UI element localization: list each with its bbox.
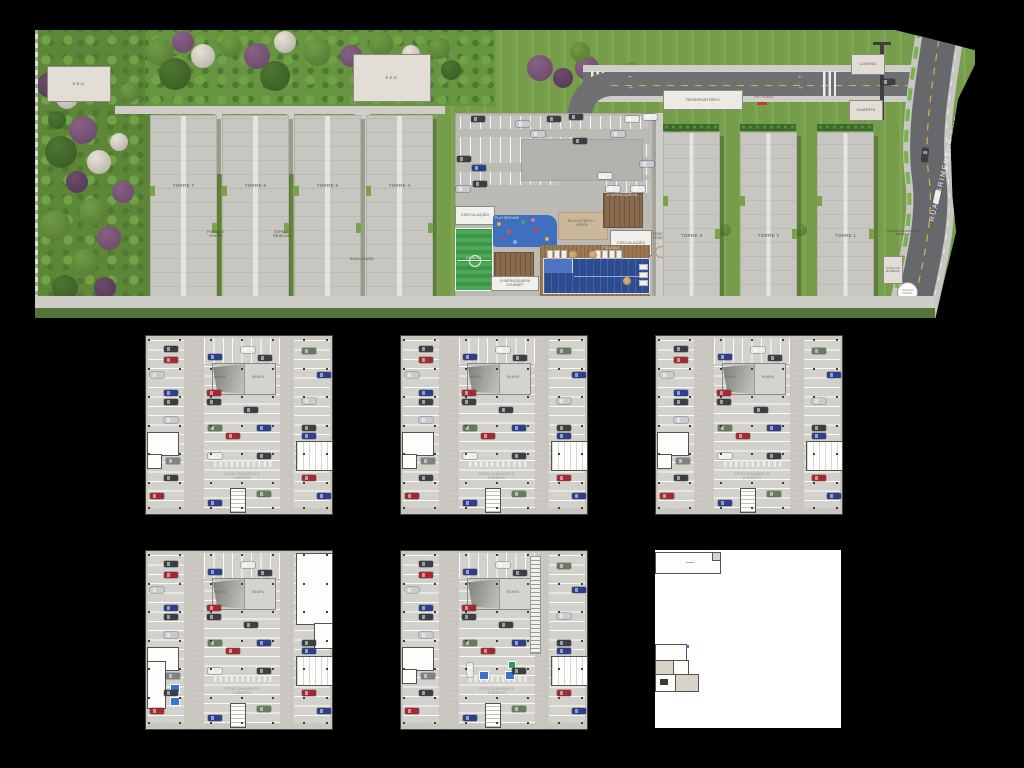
column-dot — [210, 697, 212, 699]
car — [405, 587, 419, 593]
column-dot — [326, 583, 328, 585]
ramp-label-1: RAMPA — [716, 375, 744, 379]
guarita-box: GUARITA — [849, 100, 883, 121]
column-dot — [813, 368, 815, 370]
car — [244, 622, 258, 628]
column-dot — [558, 482, 560, 484]
car — [457, 156, 471, 162]
car — [302, 348, 316, 354]
car — [462, 614, 476, 620]
umbrella — [623, 277, 631, 285]
car — [257, 706, 271, 712]
pool-lounger — [554, 250, 560, 259]
car — [164, 614, 178, 620]
column-dot — [581, 425, 583, 427]
hedge-1 — [663, 124, 719, 131]
blue-fixture — [686, 645, 689, 648]
column-dot — [527, 583, 529, 585]
boulevard-label: BOULEVARD — [345, 257, 379, 261]
column-dot — [210, 611, 212, 613]
car — [164, 561, 178, 567]
playground-toy — [501, 236, 505, 240]
tower-notch — [817, 196, 822, 206]
car — [419, 632, 433, 638]
room-left — [147, 432, 179, 456]
column-dot — [148, 396, 150, 398]
column-dot — [581, 668, 583, 670]
ramp-flat — [244, 364, 275, 394]
room-right — [296, 441, 333, 471]
column-dot — [403, 640, 405, 642]
car — [164, 572, 178, 578]
car — [258, 355, 272, 361]
tower-label: TORRE 5 — [295, 183, 360, 188]
column-dot — [303, 611, 305, 613]
column-dot — [527, 640, 529, 642]
column-dot — [241, 697, 243, 699]
column-dot — [403, 339, 405, 341]
tower-2: TORRE 2 — [740, 132, 797, 300]
car — [767, 491, 781, 497]
column-dot — [210, 583, 212, 585]
car — [572, 493, 586, 499]
estacionamento-label: ESTACIONAMENTO COBERTO — [726, 472, 778, 480]
column-dot — [403, 611, 405, 613]
playground-toy — [507, 230, 511, 234]
column-dot — [241, 554, 243, 556]
column-dot — [241, 425, 243, 427]
column-dot — [148, 507, 150, 509]
column-dot — [272, 368, 274, 370]
car — [463, 569, 477, 575]
tower-label: TORRE 2 — [741, 233, 796, 238]
gate-beam — [873, 42, 891, 45]
column-dot — [689, 368, 691, 370]
car — [754, 407, 768, 413]
parking-ramp — [212, 363, 276, 395]
column-dot — [434, 697, 436, 699]
column-dot — [751, 396, 753, 398]
column-dot — [272, 697, 274, 699]
column-dot — [720, 453, 722, 455]
column-dot — [581, 583, 583, 585]
estacionamento-label: ESTACIONAMENTO COBERTO — [216, 687, 268, 695]
car — [150, 493, 164, 499]
column-dot — [148, 583, 150, 585]
car — [512, 491, 526, 497]
column-dot — [751, 425, 753, 427]
column-dot — [241, 640, 243, 642]
parking-ramp — [722, 363, 786, 395]
column-dot — [403, 507, 405, 509]
column-dot — [179, 722, 181, 724]
column-dot — [689, 453, 691, 455]
car — [473, 181, 487, 187]
stair-core — [485, 488, 501, 513]
room-right — [806, 441, 843, 471]
pool-lounger — [561, 250, 567, 259]
column-dot — [689, 482, 691, 484]
eed-box: E.E.D. — [47, 66, 111, 102]
sidewalk-bottom — [35, 296, 935, 308]
column-dot — [148, 482, 150, 484]
car — [569, 114, 583, 120]
estacionamento-label: ESTACIONAMENTO COBERTO — [471, 472, 523, 480]
car — [419, 346, 433, 352]
column-dot — [465, 339, 467, 341]
column-dot — [403, 368, 405, 370]
car — [631, 186, 645, 192]
column-dot — [303, 368, 305, 370]
column-dot — [210, 722, 212, 724]
playground-toy — [535, 228, 539, 232]
floor-plan-3: RAMPA RAMPA ESTACIONAMENTO COBERTO — [655, 335, 843, 515]
column-dot — [241, 611, 243, 613]
column-dot — [241, 339, 243, 341]
column-dot — [751, 453, 753, 455]
car — [625, 116, 639, 122]
column-dot — [210, 396, 212, 398]
column-dot — [558, 425, 560, 427]
car — [557, 433, 571, 439]
car — [812, 348, 826, 354]
stall-strip-right — [294, 340, 330, 508]
column-dot — [527, 368, 529, 370]
car — [241, 562, 255, 568]
ramp-label-2: RAMPA — [244, 375, 272, 379]
column-dot — [326, 339, 328, 341]
car — [512, 425, 526, 431]
column-dot — [496, 368, 498, 370]
column-dot — [689, 425, 691, 427]
column-dot — [558, 453, 560, 455]
column-dot — [496, 482, 498, 484]
estacionamento-label: ESTACIONAMENTO COBERTO — [216, 472, 268, 480]
car — [419, 475, 433, 481]
car — [302, 433, 316, 439]
tower-3: TORRE 3 — [663, 132, 720, 300]
car — [499, 407, 513, 413]
car — [557, 475, 571, 481]
tower-5: TORRE 5 — [294, 115, 361, 302]
espaco-brincar-label: ESPAÇO BRINCAR — [269, 230, 295, 239]
column-dot — [210, 339, 212, 341]
pool-lounger — [639, 280, 648, 286]
column-dot — [465, 722, 467, 724]
playground-toy — [531, 218, 535, 222]
column-dot — [148, 368, 150, 370]
column-dot — [558, 697, 560, 699]
car — [674, 346, 688, 352]
column-dot — [326, 697, 328, 699]
car — [827, 493, 841, 499]
car — [257, 453, 271, 459]
column-dot — [720, 368, 722, 370]
car — [736, 433, 750, 439]
car — [676, 458, 690, 464]
column-dot — [496, 554, 498, 556]
car — [812, 433, 826, 439]
column-dot — [403, 554, 405, 556]
eee-box: E.E.E. — [353, 54, 431, 102]
column-dot — [496, 453, 498, 455]
column-dot — [148, 697, 150, 699]
pool-lane-line — [574, 276, 647, 277]
ramp-flat — [499, 579, 530, 609]
car — [419, 572, 433, 578]
column-dot — [465, 611, 467, 613]
stair-core — [230, 703, 246, 728]
column-dot — [272, 722, 274, 724]
stair-core — [485, 703, 501, 728]
car — [496, 562, 510, 568]
pool-lounger — [639, 264, 648, 270]
car — [302, 398, 316, 404]
umbrella — [589, 251, 597, 259]
column-dot — [179, 583, 181, 585]
column-dot — [689, 507, 691, 509]
column-dot — [303, 554, 305, 556]
masterplan-canvas: ← → ← → RUA AGRIMENSOR SUGAYA LIXEIRA GU… — [0, 0, 1024, 768]
column-dot — [403, 583, 405, 585]
tower-1: TORRE 1 — [817, 132, 874, 300]
column-dot — [272, 507, 274, 509]
column-dot — [558, 396, 560, 398]
tower-label: TORRE 7 — [151, 183, 216, 188]
column-dot — [581, 722, 583, 724]
column-dot — [527, 396, 529, 398]
column-dot — [558, 583, 560, 585]
tower-notch — [428, 223, 433, 233]
car — [208, 715, 222, 721]
column-dot — [241, 507, 243, 509]
car — [674, 475, 688, 481]
column-dot — [326, 554, 328, 556]
column-dot — [326, 668, 328, 670]
ramp-label-2: RAMPA — [244, 590, 272, 594]
car — [513, 570, 527, 576]
car — [496, 347, 510, 353]
car — [421, 673, 435, 679]
column-dot — [403, 425, 405, 427]
car — [751, 347, 765, 353]
column-dot — [179, 339, 181, 341]
car — [557, 563, 571, 569]
column-dot — [326, 482, 328, 484]
car — [718, 500, 732, 506]
tower-label: TORRE 6 — [223, 183, 288, 188]
column-dot — [558, 368, 560, 370]
car — [767, 453, 781, 459]
floor-plan-2: RAMPA RAMPA ESTACIONAMENTO COBERTO — [400, 335, 588, 515]
column-dot — [658, 339, 660, 341]
car — [317, 708, 331, 714]
car — [208, 500, 222, 506]
playground-toy — [545, 237, 549, 241]
column-dot — [403, 722, 405, 724]
floor-plan-5: RAMPA RAMPA ESTACIONAMENTO COBERTO — [400, 550, 588, 730]
column-dot — [303, 482, 305, 484]
column-dot — [241, 453, 243, 455]
column-dot — [782, 396, 784, 398]
tower-label: TORRE 4 — [367, 183, 432, 188]
unit-room-5 — [675, 674, 699, 692]
playground-toy — [497, 222, 501, 226]
playground-toy — [513, 240, 517, 244]
room-left — [657, 432, 689, 456]
column-dot — [210, 482, 212, 484]
car — [531, 131, 545, 137]
column-dot — [403, 668, 405, 670]
tower-notch — [356, 223, 361, 233]
car — [499, 622, 513, 628]
car — [257, 425, 271, 431]
column-dot — [434, 640, 436, 642]
floor-plan-6 — [655, 550, 841, 728]
car — [463, 354, 477, 360]
pool-lounger — [639, 272, 648, 278]
lixeira-box: LIXEIRA — [851, 54, 885, 75]
pet-place-label: PET PLACE — [747, 96, 781, 100]
column-dot — [527, 482, 529, 484]
column-dot — [241, 396, 243, 398]
quadra-label: QUADRA — [456, 257, 492, 261]
column-dot — [527, 722, 529, 724]
column-dot — [303, 583, 305, 585]
column-dot — [558, 507, 560, 509]
car — [317, 372, 331, 378]
ground-room-annex — [314, 623, 333, 649]
car — [208, 569, 222, 575]
stall-strip-right — [549, 340, 585, 508]
car — [456, 186, 470, 192]
column-dot — [179, 640, 181, 642]
bicicletario-horta-label: BICICLETÁRIO + HORTA — [563, 220, 601, 228]
car — [419, 357, 433, 363]
umbrella — [569, 251, 577, 259]
car — [674, 390, 688, 396]
churrasqueira-label: CHURRASQUEIRA — [603, 194, 641, 198]
column-dot — [465, 583, 467, 585]
column-dot — [558, 722, 560, 724]
walkway-top — [115, 106, 445, 114]
room-right — [551, 656, 588, 686]
car — [572, 708, 586, 714]
column-dot — [434, 583, 436, 585]
column-dot — [434, 425, 436, 427]
floor-plan-1: RAMPA RAMPA ESTACIONAMENTO COBERTO — [145, 335, 333, 515]
tower-notch — [366, 186, 371, 196]
car — [512, 640, 526, 646]
column-dot — [326, 611, 328, 613]
column-dot — [813, 396, 815, 398]
column-dot — [179, 368, 181, 370]
tower-label: TORRE 1 — [818, 233, 873, 238]
car — [164, 632, 178, 638]
stair-core — [740, 488, 756, 513]
column-dot — [303, 339, 305, 341]
column-dot — [210, 425, 212, 427]
column-dot — [836, 453, 838, 455]
column-dot — [496, 640, 498, 642]
car — [767, 425, 781, 431]
column-dot — [496, 339, 498, 341]
car — [611, 131, 625, 137]
car — [481, 433, 495, 439]
column-dot — [558, 339, 560, 341]
column-dot — [148, 339, 150, 341]
column-dot — [210, 668, 212, 670]
plan-crosswalk — [214, 675, 272, 682]
column-dot — [465, 453, 467, 455]
column-dot — [303, 640, 305, 642]
column-dot — [782, 368, 784, 370]
car — [572, 372, 586, 378]
column-dot — [496, 583, 498, 585]
boundary-bottom — [35, 308, 935, 318]
column-dot — [581, 611, 583, 613]
column-dot — [179, 453, 181, 455]
column-dot — [434, 368, 436, 370]
column-dot — [434, 611, 436, 613]
car — [419, 561, 433, 567]
column-dot — [782, 482, 784, 484]
column-dot — [326, 722, 328, 724]
plan-crosswalk — [469, 675, 527, 682]
column-dot — [496, 396, 498, 398]
parking-ramp — [467, 578, 531, 610]
pool-lounger — [547, 250, 553, 259]
column-dot — [658, 396, 660, 398]
car — [207, 399, 221, 405]
column-dot — [465, 640, 467, 642]
parking-ramp — [212, 578, 276, 610]
column-dot — [210, 554, 212, 556]
column-dot — [689, 339, 691, 341]
column-dot — [782, 507, 784, 509]
column-dot — [434, 668, 436, 670]
accessible-spot-3 — [479, 671, 489, 680]
column-dot — [434, 339, 436, 341]
column-dot — [326, 425, 328, 427]
room-left-small — [147, 454, 162, 469]
car — [302, 648, 316, 654]
site-plan: ← → ← → RUA AGRIMENSOR SUGAYA LIXEIRA GU… — [35, 30, 975, 318]
car — [471, 116, 485, 122]
column-dot — [210, 640, 212, 642]
column-dot — [241, 668, 243, 670]
car — [164, 346, 178, 352]
column-dot — [179, 482, 181, 484]
car — [405, 372, 419, 378]
hedge-3 — [817, 124, 873, 131]
column-dot — [148, 425, 150, 427]
column-dot — [720, 339, 722, 341]
car — [405, 708, 419, 714]
column-dot — [558, 640, 560, 642]
car — [164, 390, 178, 396]
tower-notch — [740, 196, 745, 206]
transformador-label: TRANSFORMADOR DE ENERGIA — [885, 230, 921, 237]
car — [302, 690, 316, 696]
car — [166, 458, 180, 464]
ground-room-top-right — [296, 553, 333, 625]
car — [812, 475, 826, 481]
car — [421, 458, 435, 464]
column-dot — [303, 697, 305, 699]
plan-crosswalk — [469, 460, 527, 467]
car — [557, 648, 571, 654]
